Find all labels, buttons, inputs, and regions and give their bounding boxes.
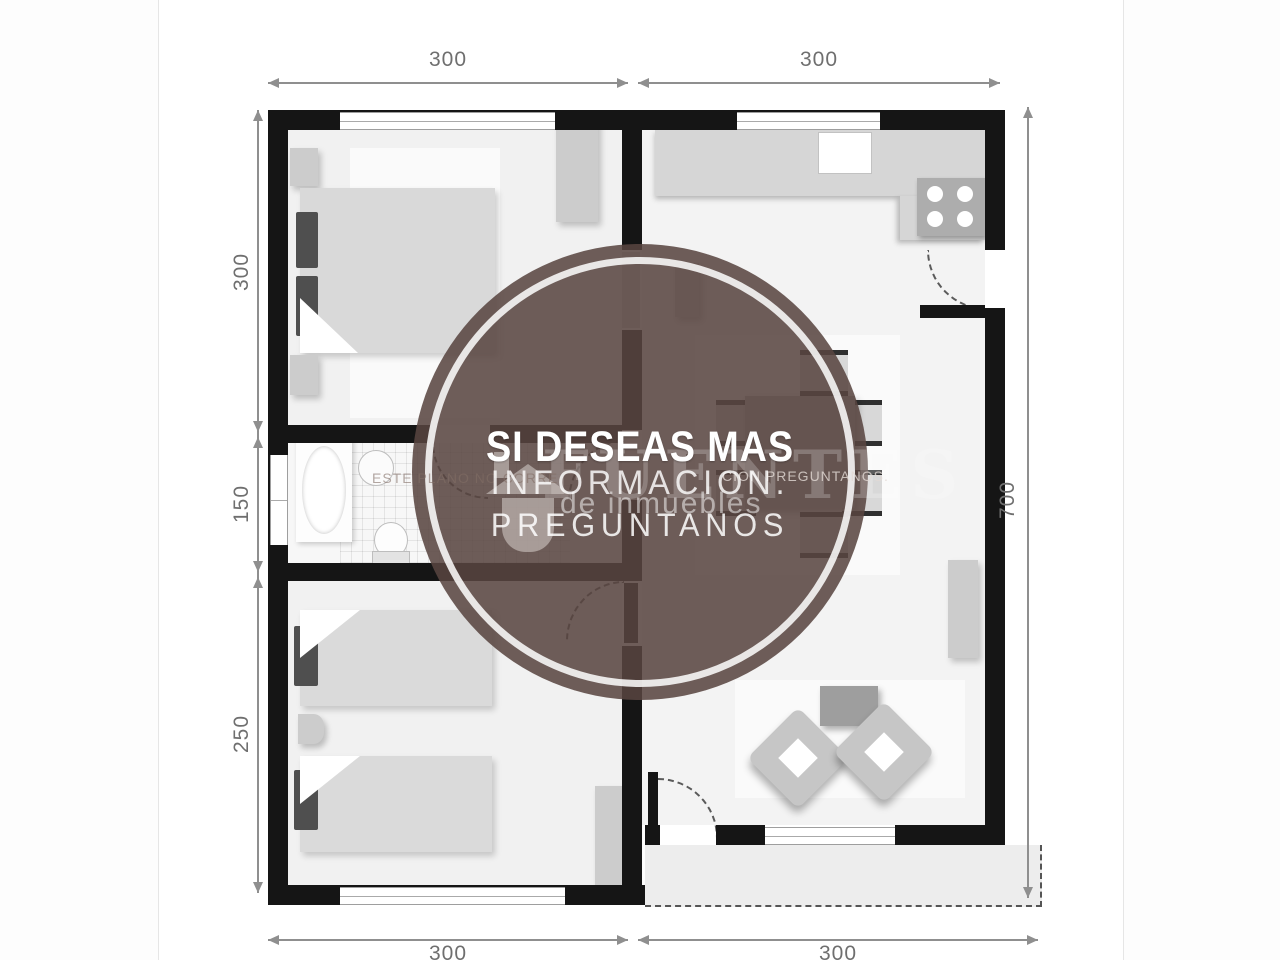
dim-arrow (253, 421, 263, 432)
dimension-label: 300 (408, 48, 488, 72)
dimension-label: 300 (408, 942, 488, 960)
dimension-label: 150 (230, 464, 254, 544)
dim-arrow (989, 78, 1000, 88)
page-left-edge (158, 0, 159, 960)
kitchen-sink (818, 132, 872, 174)
dim-arrow (617, 78, 628, 88)
dimension-line (638, 82, 1000, 84)
dimension-line (268, 939, 628, 941)
dimension-label: 300 (798, 942, 878, 960)
dimension-line (257, 110, 259, 893)
dimension-line (638, 939, 1038, 941)
window (765, 827, 895, 845)
dim-arrow (1027, 935, 1038, 945)
pillow (296, 212, 318, 268)
stove-burner (927, 186, 943, 202)
stove-burner (957, 211, 973, 227)
wardrobe (556, 118, 598, 222)
terrace (645, 845, 1042, 907)
wall-bedroom1-bathroom (288, 425, 430, 443)
nightstand (290, 355, 318, 395)
floor-plan-screenshot: 300 300 300 300 300 150 250 700 FUENTES … (0, 0, 1280, 960)
stove-burner (927, 211, 943, 227)
door-leaf (648, 772, 658, 827)
wall-right-lower (985, 308, 1005, 845)
dim-arrow (638, 78, 649, 88)
dim-arrow (268, 78, 279, 88)
dimension-line (1027, 107, 1029, 898)
watermark-line3: PREGUNTANOS (427, 507, 853, 544)
dim-arrow (253, 437, 263, 448)
wall-kitchen-stub (920, 305, 985, 318)
dim-arrow (638, 935, 649, 945)
dim-arrow (1023, 107, 1033, 118)
dimension-label: 300 (230, 232, 254, 312)
wall-right-upper (985, 110, 1005, 250)
dimension-label: 700 (996, 460, 1020, 540)
dimension-line (268, 82, 628, 84)
dim-arrow (253, 577, 263, 588)
nightstand (298, 714, 324, 744)
cabinet (948, 560, 978, 658)
stove (917, 178, 985, 236)
window (737, 112, 880, 130)
window (340, 112, 555, 130)
dim-arrow (253, 561, 263, 572)
dim-arrow (268, 935, 279, 945)
dim-arrow (253, 110, 263, 121)
wall-center (622, 110, 642, 250)
dim-arrow (617, 935, 628, 945)
armchair-cushion (778, 738, 818, 778)
watermark-line2: INFORMACION. (427, 464, 853, 503)
page-right-edge (1123, 0, 1124, 960)
stove-burner (957, 186, 973, 202)
wall-living-bottom (716, 825, 765, 845)
wall-living-bottom (895, 825, 1005, 845)
nightstand (290, 148, 318, 186)
dimension-label: 250 (230, 694, 254, 774)
wall-living-bottom (645, 825, 660, 845)
dimension-label: 300 (779, 48, 859, 72)
armchair-cushion (864, 732, 904, 772)
bathtub-basin (302, 446, 346, 534)
dim-arrow (253, 882, 263, 893)
window (270, 455, 288, 545)
dim-arrow (1023, 887, 1033, 898)
window (340, 887, 565, 905)
